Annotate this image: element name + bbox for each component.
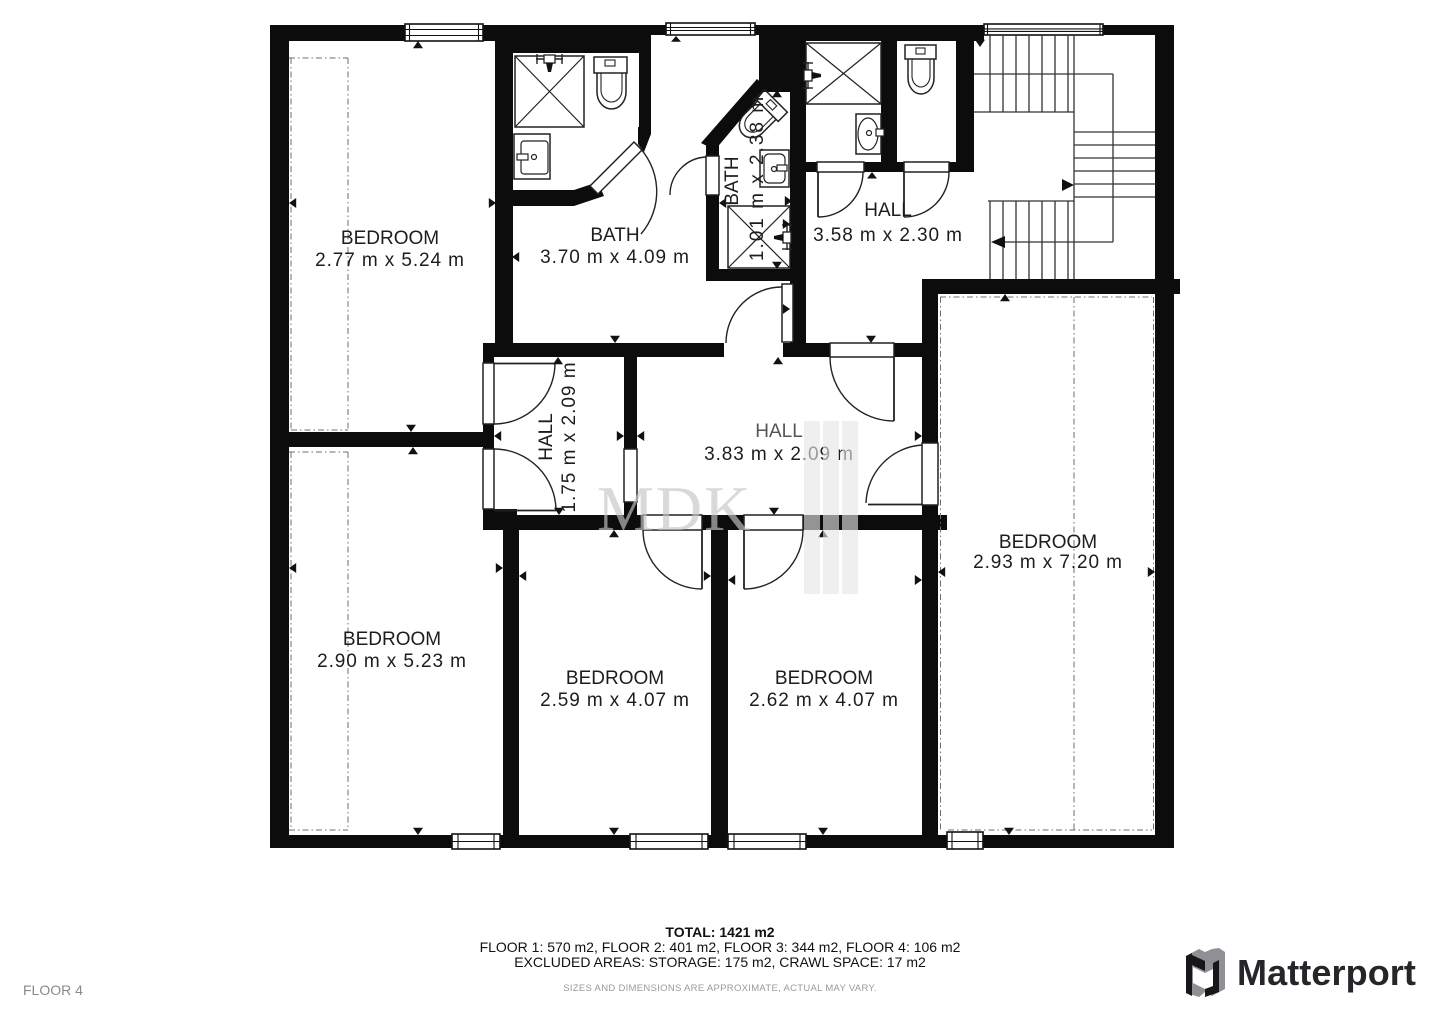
svg-text:BEDROOM: BEDROOM [341, 228, 439, 249]
svg-text:2.62 m x 4.07 m: 2.62 m x 4.07 m [749, 690, 899, 711]
svg-text:HALL: HALL [864, 200, 912, 221]
svg-text:1.01 m x 2.38 m: 1.01 m x 2.38 m [747, 95, 768, 261]
svg-text:3.58 m x 2.30 m: 3.58 m x 2.30 m [813, 225, 963, 246]
svg-text:EXCLUDED AREAS: STORAGE: 175 m: EXCLUDED AREAS: STORAGE: 175 m2, CRAWL S… [514, 954, 926, 970]
svg-text:2.93 m x 7.20 m: 2.93 m x 7.20 m [973, 552, 1123, 573]
svg-text:MDK: MDK [597, 473, 752, 544]
svg-text:2.90 m x 5.23 m: 2.90 m x 5.23 m [317, 651, 467, 672]
svg-text:HALL: HALL [536, 413, 557, 461]
svg-text:FLOOR 1: 570 m2, FLOOR 2: 401: FLOOR 1: 570 m2, FLOOR 2: 401 m2, FLOOR … [480, 939, 961, 955]
svg-text:BEDROOM: BEDROOM [775, 668, 873, 689]
svg-text:Matterport: Matterport [1237, 952, 1416, 993]
svg-text:BEDROOM: BEDROOM [566, 668, 664, 689]
svg-text:TOTAL: 1421 m2: TOTAL: 1421 m2 [665, 924, 774, 940]
svg-text:HALL: HALL [755, 421, 803, 442]
svg-text:BEDROOM: BEDROOM [999, 532, 1097, 553]
svg-text:BEDROOM: BEDROOM [343, 629, 441, 650]
svg-text:BATH: BATH [722, 156, 743, 205]
svg-text:1.75 m x 2.09 m: 1.75 m x 2.09 m [559, 361, 580, 512]
svg-text:FLOOR 4: FLOOR 4 [23, 982, 83, 998]
svg-text:2.77 m x 5.24 m: 2.77 m x 5.24 m [315, 250, 465, 271]
svg-text:BATH: BATH [590, 225, 639, 246]
svg-text:2.59 m x 4.07 m: 2.59 m x 4.07 m [540, 690, 690, 711]
svg-text:3.70 m x 4.09 m: 3.70 m x 4.09 m [540, 247, 690, 268]
svg-text:SIZES AND DIMENSIONS ARE APPRO: SIZES AND DIMENSIONS ARE APPROXIMATE, AC… [563, 983, 877, 994]
